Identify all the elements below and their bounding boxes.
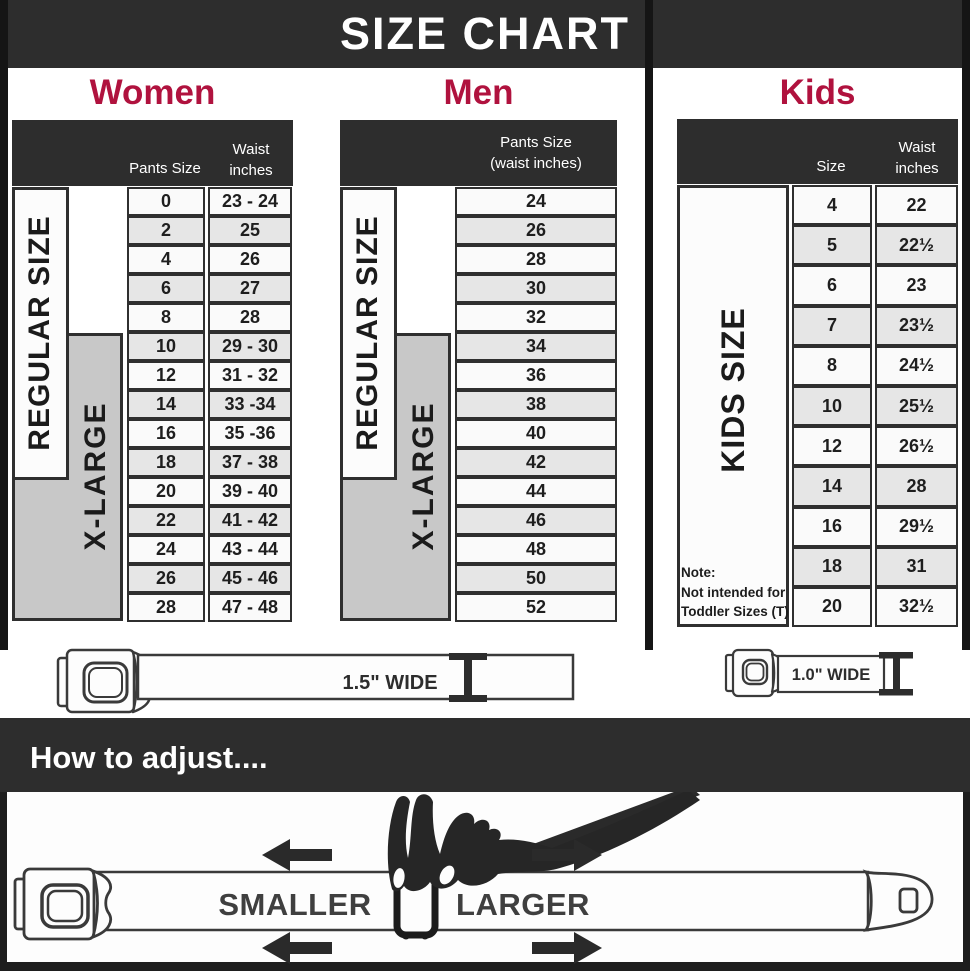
women-waist-header: Waist inches (208, 139, 294, 181)
page-title: SIZE CHART (340, 8, 630, 60)
frame-right-border (962, 0, 970, 650)
waist-inches-cell: 22½ (875, 225, 958, 265)
pants-size-cell: 24 (127, 535, 205, 564)
men-table-row: 48 (455, 535, 617, 564)
pants-size-cell: 44 (455, 477, 617, 506)
pants-size-cell: 50 (455, 564, 617, 593)
men-table-header: Pants Size (waist inches) (340, 120, 617, 186)
kids-table-row: 20 32½ (792, 587, 958, 627)
pants-size-cell: 10 (127, 332, 205, 361)
pants-size-cell: 18 (127, 448, 205, 477)
men-regular-size-label: REGULAR SIZE (346, 183, 390, 483)
pants-size-cell: 32 (455, 303, 617, 332)
waist-inches-cell: 28 (208, 303, 292, 332)
waist-inches-cell: 29 - 30 (208, 332, 292, 361)
pants-size-cell: 38 (455, 390, 617, 419)
pants-size-cell: 20 (127, 477, 205, 506)
pants-size-cell: 16 (127, 419, 205, 448)
men-xlarge-label: X-LARGE (402, 326, 446, 626)
belt-tip (866, 872, 932, 930)
waist-inches-cell: 31 - 32 (208, 361, 292, 390)
waist-inches-cell: 41 - 42 (208, 506, 292, 535)
pants-size-cell: 14 (127, 390, 205, 419)
pants-size-cell: 36 (455, 361, 617, 390)
men-table-row: 24 (455, 187, 617, 216)
pants-size-cell: 22 (127, 506, 205, 535)
kids-table-header: Size Waist inches (677, 119, 958, 184)
waist-inches-cell: 35 -36 (208, 419, 292, 448)
women-table-row: 18 37 - 38 (127, 448, 293, 477)
waist-inches-cell: 27 (208, 274, 292, 303)
men-table-row: 50 (455, 564, 617, 593)
kids-table-row: 14 28 (792, 466, 958, 506)
kids-size-header: Size (790, 156, 872, 177)
kids-table-row: 4 22 (792, 185, 958, 225)
women-table-row: 12 31 - 32 (127, 361, 293, 390)
kids-waist-header: Waist inches (875, 137, 959, 179)
pants-size-cell: 28 (455, 245, 617, 274)
kids-section-divider (645, 0, 653, 650)
waist-inches-cell: 23 (875, 265, 958, 305)
women-table-row: 2 25 (127, 216, 293, 245)
pants-size-cell: 52 (455, 593, 617, 622)
pants-size-cell: 30 (455, 274, 617, 303)
waist-inches-cell: 33 -34 (208, 390, 292, 419)
waist-inches-cell: 25½ (875, 386, 958, 426)
pants-size-cell: 24 (455, 187, 617, 216)
kids-section-title: Kids (677, 72, 958, 114)
kids-belt-width-label: 1.0" WIDE (792, 666, 870, 684)
men-table-row: 26 (455, 216, 617, 245)
pants-size-cell: 26 (127, 564, 205, 593)
pants-size-cell: 42 (455, 448, 617, 477)
waist-inches-cell: 29½ (875, 507, 958, 547)
arrow-right-icon (532, 932, 602, 964)
waist-inches-cell: 37 - 38 (208, 448, 292, 477)
men-table-row: 30 (455, 274, 617, 303)
pants-size-cell: 6 (127, 274, 205, 303)
men-size-table-body: 24 26 28 30 32 34 36 (455, 187, 617, 622)
size-cell: 8 (792, 346, 872, 386)
kids-table-row: 5 22½ (792, 225, 958, 265)
women-table-row: 24 43 - 44 (127, 535, 293, 564)
size-cell: 14 (792, 466, 872, 506)
size-cell: 20 (792, 587, 872, 627)
women-table-row: 8 28 (127, 303, 293, 332)
belt-buckle-icon (58, 650, 150, 712)
men-table-row: 28 (455, 245, 617, 274)
size-cell: 18 (792, 547, 872, 587)
men-table-row: 40 (455, 419, 617, 448)
smaller-label: SMALLER (218, 887, 371, 922)
men-table-row: 34 (455, 332, 617, 361)
men-section-title: Men (340, 72, 617, 114)
waist-inches-cell: 39 - 40 (208, 477, 292, 506)
women-pants-size-header: Pants Size (125, 158, 205, 179)
waist-inches-cell: 45 - 46 (208, 564, 292, 593)
men-table-row: 52 (455, 593, 617, 622)
waist-inches-cell: 28 (875, 466, 958, 506)
larger-label: LARGER (456, 887, 590, 922)
arrow-left-icon (262, 839, 332, 871)
women-table-row: 22 41 - 42 (127, 506, 293, 535)
pants-size-cell: 48 (455, 535, 617, 564)
women-table-row: 6 27 (127, 274, 293, 303)
waist-inches-cell: 25 (208, 216, 292, 245)
women-table-row: 26 45 - 46 (127, 564, 293, 593)
women-table-header: Pants Size Waist inches (12, 120, 293, 186)
women-table-row: 28 47 - 48 (127, 593, 293, 622)
pants-size-cell: 2 (127, 216, 205, 245)
waist-inches-cell: 23 - 24 (208, 187, 292, 216)
women-size-table-body: 0 23 - 24 2 25 4 26 6 27 8 28 (127, 187, 293, 622)
size-cell: 5 (792, 225, 872, 265)
women-table-row: 14 33 -34 (127, 390, 293, 419)
men-table-row: 42 (455, 448, 617, 477)
waist-inches-cell: 22 (875, 185, 958, 225)
title-bar: SIZE CHART (0, 0, 970, 68)
women-table-row: 4 26 (127, 245, 293, 274)
adjust-illustration: SMALLER LARGER (0, 792, 970, 971)
men-pants-size-header: Pants Size (waist inches) (456, 132, 616, 174)
pants-size-cell: 40 (455, 419, 617, 448)
size-cell: 6 (792, 265, 872, 305)
pants-size-cell: 4 (127, 245, 205, 274)
size-chart-infographic: SIZE CHART Women Pants Size Waist inches… (0, 0, 970, 971)
men-table-row: 46 (455, 506, 617, 535)
men-table-row: 36 (455, 361, 617, 390)
men-table-row: 44 (455, 477, 617, 506)
waist-inches-cell: 26 (208, 245, 292, 274)
kids-size-table-body: 4 22 5 22½ 6 23 7 23½ 8 24½ (792, 185, 958, 627)
kids-table-row: 18 31 (792, 547, 958, 587)
size-cell: 7 (792, 306, 872, 346)
arrow-left-icon (262, 932, 332, 964)
women-section-title: Women (12, 72, 293, 114)
women-table-row: 20 39 - 40 (127, 477, 293, 506)
size-cell: 4 (792, 185, 872, 225)
waist-inches-cell: 26½ (875, 426, 958, 466)
kids-note: Note: Not intended for Toddler Sizes (T) (681, 563, 789, 622)
waist-inches-cell: 43 - 44 (208, 535, 292, 564)
adult-belt-illustration: 1.5" WIDE (0, 642, 650, 722)
men-table-row: 32 (455, 303, 617, 332)
kids-belt-illustration: 1.0" WIDE (690, 645, 960, 703)
kids-size-label: KIDS SIZE (711, 240, 755, 540)
women-regular-size-label: REGULAR SIZE (18, 183, 62, 483)
frame-left-border (0, 0, 8, 650)
women-xlarge-label: X-LARGE (74, 326, 118, 626)
women-table-row: 0 23 - 24 (127, 187, 293, 216)
kids-table-row: 7 23½ (792, 306, 958, 346)
kids-table-row: 10 25½ (792, 386, 958, 426)
how-to-adjust-heading: How to adjust.... (0, 734, 268, 776)
kids-table-row: 12 26½ (792, 426, 958, 466)
belt-buckle-icon (15, 869, 111, 939)
pants-size-cell: 28 (127, 593, 205, 622)
waist-inches-cell: 23½ (875, 306, 958, 346)
women-table-row: 10 29 - 30 (127, 332, 293, 361)
waist-inches-cell: 32½ (875, 587, 958, 627)
pants-size-cell: 8 (127, 303, 205, 332)
waist-inches-cell: 31 (875, 547, 958, 587)
pants-size-cell: 26 (455, 216, 617, 245)
waist-inches-cell: 47 - 48 (208, 593, 292, 622)
waist-inches-cell: 24½ (875, 346, 958, 386)
kids-table-row: 8 24½ (792, 346, 958, 386)
pants-size-cell: 0 (127, 187, 205, 216)
kids-table-row: 6 23 (792, 265, 958, 305)
pants-size-cell: 46 (455, 506, 617, 535)
adult-belt-width-label: 1.5" WIDE (342, 672, 437, 694)
kids-table-row: 16 29½ (792, 507, 958, 547)
size-cell: 10 (792, 386, 872, 426)
belt-buckle-icon (726, 650, 784, 696)
men-table-row: 38 (455, 390, 617, 419)
size-cell: 16 (792, 507, 872, 547)
women-table-row: 16 35 -36 (127, 419, 293, 448)
how-to-adjust-bar: How to adjust.... (0, 718, 970, 792)
size-cell: 12 (792, 426, 872, 466)
pants-size-cell: 34 (455, 332, 617, 361)
pants-size-cell: 12 (127, 361, 205, 390)
